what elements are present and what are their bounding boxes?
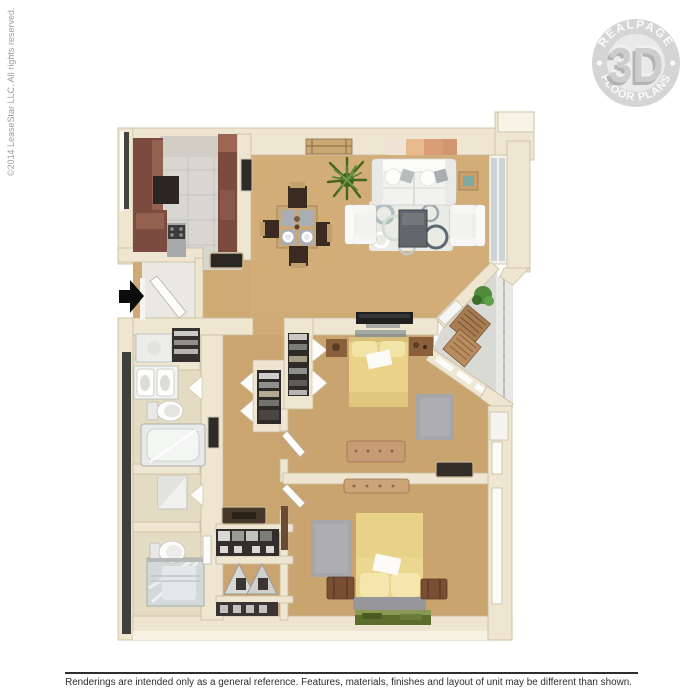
svg-text:3D: 3D [608, 37, 663, 92]
